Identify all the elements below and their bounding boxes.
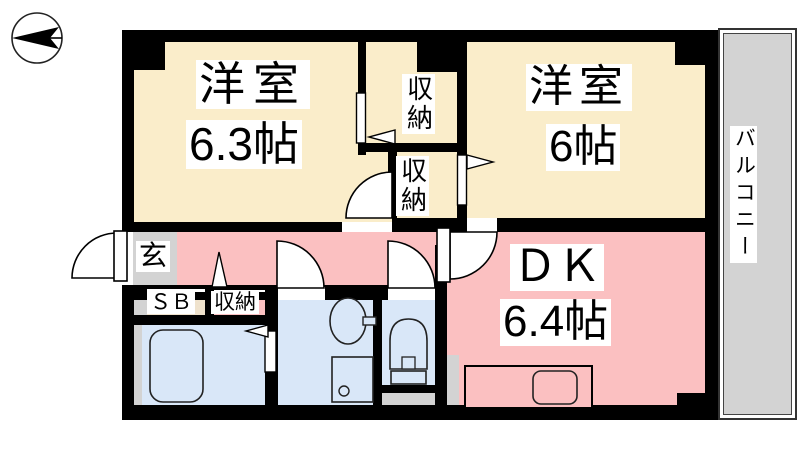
closet-lower-label: 収納 (396, 156, 429, 216)
floorplan-canvas: 洋室 6.3帖 洋室 6帖 ＤＫ 6.4帖 収納 収納 バルコニー 玄 ＳＢ 収… (0, 0, 800, 450)
hall-storage-opening-marker (212, 252, 227, 287)
wash-basin-faucet-icon (363, 317, 376, 325)
entrance-door-arc (72, 233, 117, 278)
hall-storage-label: 収納 (211, 291, 259, 314)
shoe-box-label: ＳＢ (147, 291, 195, 314)
bedroom-right-door-leaf (437, 228, 450, 282)
symbol-overlay (0, 0, 800, 450)
bedroom-left-door-arc (346, 172, 392, 218)
toilet-icon (390, 319, 427, 384)
closet-lower-opening-marker (467, 155, 493, 169)
toilet-door-arc (388, 241, 435, 288)
bath-opening-marker (246, 325, 268, 337)
kitchen-counter-icon (465, 366, 592, 408)
closet-upper-label: 収納 (402, 74, 435, 134)
kitchen-sink-icon (533, 371, 577, 404)
bedroom-left-size: 6.3帖 (186, 120, 302, 169)
washroom-door-arc (277, 241, 324, 288)
dk-name: ＤＫ (510, 244, 604, 291)
bedroom-right-door-arc (450, 232, 497, 279)
wash-basin-icon (330, 298, 366, 344)
bathtub-icon (150, 330, 203, 402)
bedroom-left-name: 洋室 (196, 60, 310, 109)
entrance-label: 玄 (136, 241, 170, 272)
dk-size: 6.4帖 (500, 299, 611, 346)
closet-lower-door-leaf (458, 155, 467, 205)
washing-machine-pan-icon (332, 357, 373, 402)
entrance-door-leaf (114, 231, 127, 281)
closet-upper-door-leaf (357, 93, 366, 143)
compass-north-icon (12, 13, 62, 63)
bedroom-right-name: 洋室 (526, 64, 632, 111)
bedroom-right-size: 6帖 (546, 124, 620, 171)
closet-upper-opening-marker (369, 130, 395, 144)
balcony-label: バルコニー (730, 126, 757, 263)
